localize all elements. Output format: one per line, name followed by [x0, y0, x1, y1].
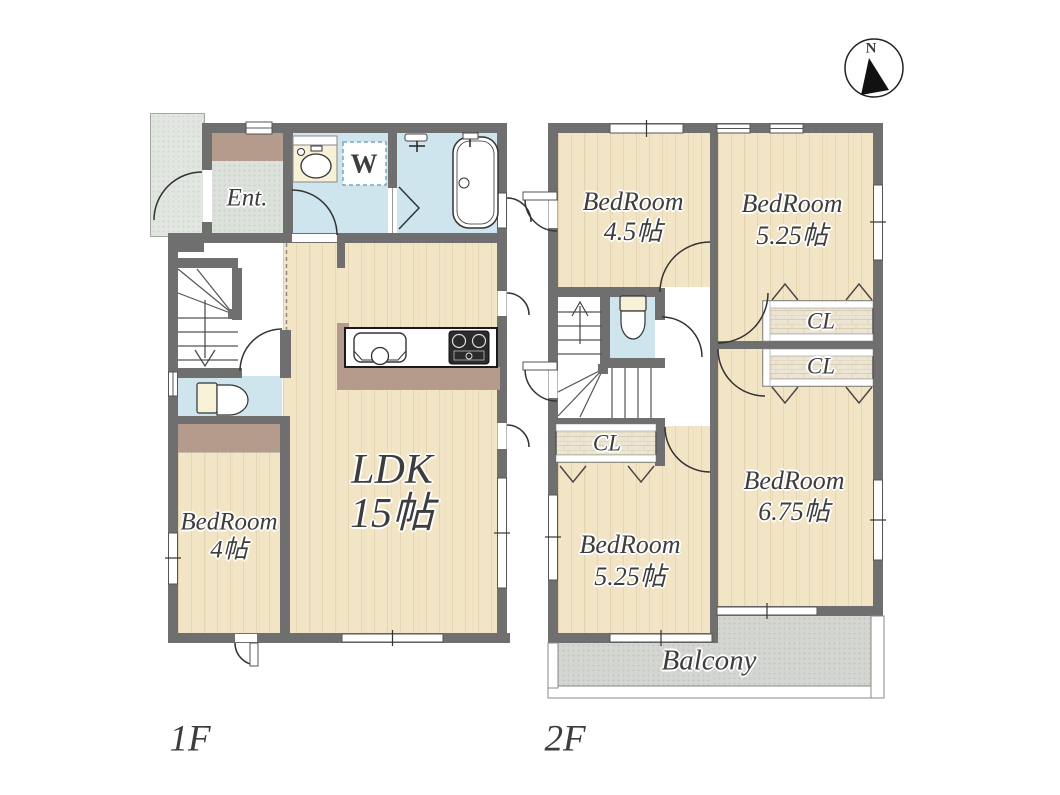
bedroom-525-north-name-label: BedRoom [741, 191, 842, 217]
closet-north-lower-label: CL [807, 355, 835, 378]
toilet-1f-icon [197, 383, 248, 415]
bedroom-525-north-door-arc [718, 293, 768, 343]
bedroom-1f-size-label: 4帖 [210, 538, 248, 563]
bedroom-45-size-label: 4.5帖 [604, 219, 663, 245]
ldk-east-door-arc-north [507, 293, 529, 315]
bathroom-fixtures [405, 133, 498, 228]
toilet-1f-door-arc [240, 329, 282, 371]
tub-faucet-icon [463, 133, 478, 139]
compass-north-label: N [866, 42, 877, 57]
toilet-2f-door-arc [662, 317, 702, 357]
washroom-door-arc [292, 190, 337, 235]
kitchen-counter [337, 323, 500, 390]
bedroom-675-door-arc [718, 349, 765, 396]
entrance-door-arc [154, 172, 202, 220]
ldk-name-label: LDK [351, 449, 433, 491]
bath-door-fold [399, 187, 419, 229]
washing-machine-label: W [351, 151, 378, 178]
toilet-2f-icon [620, 296, 646, 339]
sink-basin-icon [301, 154, 331, 178]
entrance-label: Ent. [227, 186, 268, 211]
bedroom-675-size-label: 6.75帖 [758, 499, 830, 525]
floor-label-2f: 2F [544, 721, 585, 758]
ldk-size-label: 15帖 [350, 493, 434, 535]
bedroom-525-south-door-arc [665, 427, 710, 472]
stairs-1f-icon [178, 269, 240, 366]
bedroom-1f-name-label: BedRoom [180, 510, 277, 535]
structure-overlay [0, 0, 1060, 795]
bedroom-675-name-label: BedRoom [743, 468, 844, 494]
floor-label-1f: 1F [169, 721, 210, 758]
closet-north-upper-label: CL [807, 310, 835, 333]
ldk-east-door-arc-south [507, 425, 529, 447]
bedroom-525-south-size-label: 5.25帖 [594, 564, 666, 590]
bedroom-525-north-size-label: 5.25帖 [756, 223, 828, 249]
closet-west-label: CL [593, 432, 621, 455]
bath-shelf-icon [405, 134, 427, 141]
faucet-icon [311, 146, 322, 151]
bedroom-45-door-arc [660, 242, 710, 292]
balcony-label: Balcony [661, 647, 756, 676]
bathtub-icon [453, 137, 498, 228]
bedroom-525-south-name-label: BedRoom [579, 532, 680, 558]
floor-plan-page: N Ent. W LDK 15帖 BedRoom 4帖 1F BedRoom 4… [0, 0, 1060, 795]
bedroom-45-name-label: BedRoom [582, 189, 683, 215]
